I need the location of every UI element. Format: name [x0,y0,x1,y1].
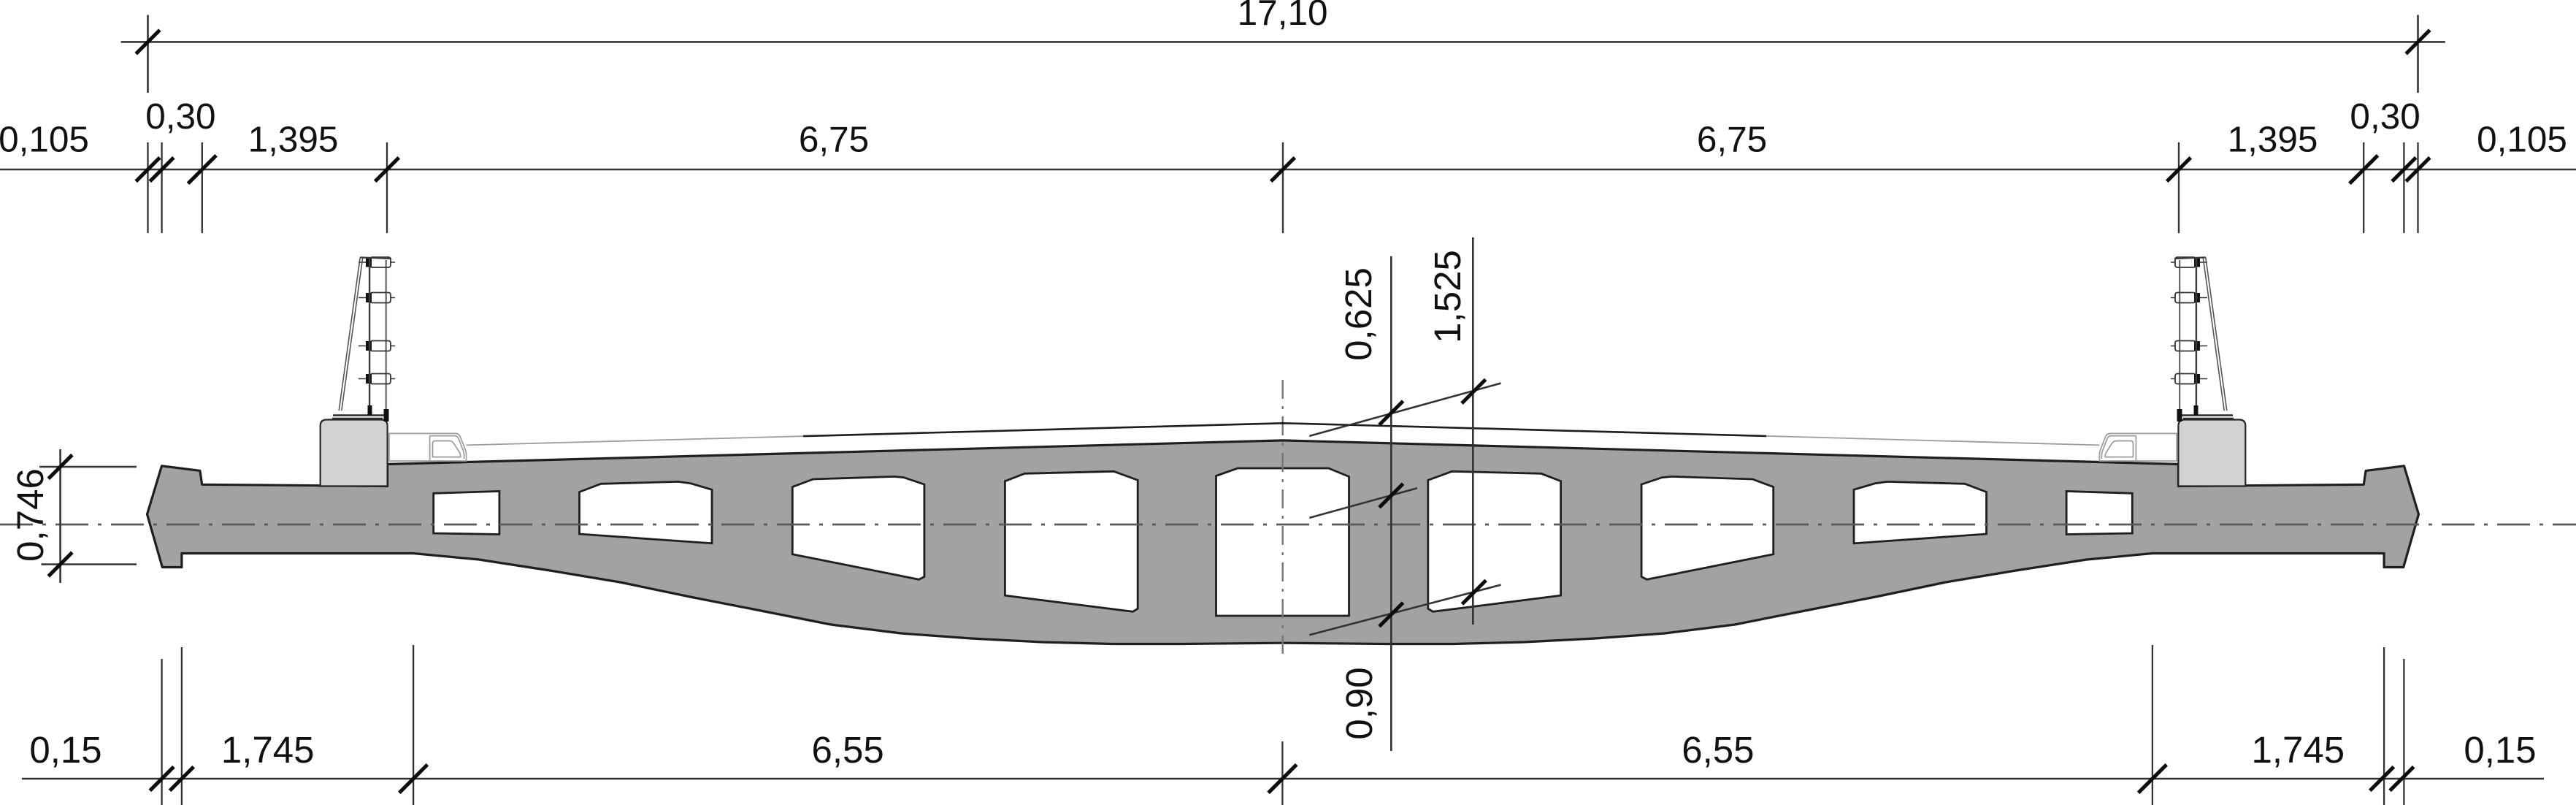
svg-text:0,30: 0,30 [145,96,215,137]
svg-text:1,745: 1,745 [221,729,315,771]
svg-text:0,15: 0,15 [2464,729,2536,771]
svg-text:6,55: 6,55 [811,729,883,771]
svg-text:0,625: 0,625 [1338,267,1379,361]
svg-text:6,75: 6,75 [799,120,869,160]
svg-text:6,75: 6,75 [1697,120,1767,160]
svg-text:0,746: 0,746 [9,468,51,562]
svg-text:1,745: 1,745 [2251,729,2345,771]
svg-text:0,90: 0,90 [1338,667,1380,739]
svg-text:17,10: 17,10 [1238,0,1328,33]
svg-text:0,105: 0,105 [0,120,89,160]
svg-text:1,395: 1,395 [2228,120,2318,160]
svg-text:0,15: 0,15 [29,729,101,771]
svg-text:6,55: 6,55 [1682,729,1754,771]
svg-text:1,395: 1,395 [248,120,339,160]
svg-text:0,30: 0,30 [2350,96,2420,137]
svg-text:0,105: 0,105 [2477,120,2567,160]
svg-text:1,525: 1,525 [1427,250,1468,343]
